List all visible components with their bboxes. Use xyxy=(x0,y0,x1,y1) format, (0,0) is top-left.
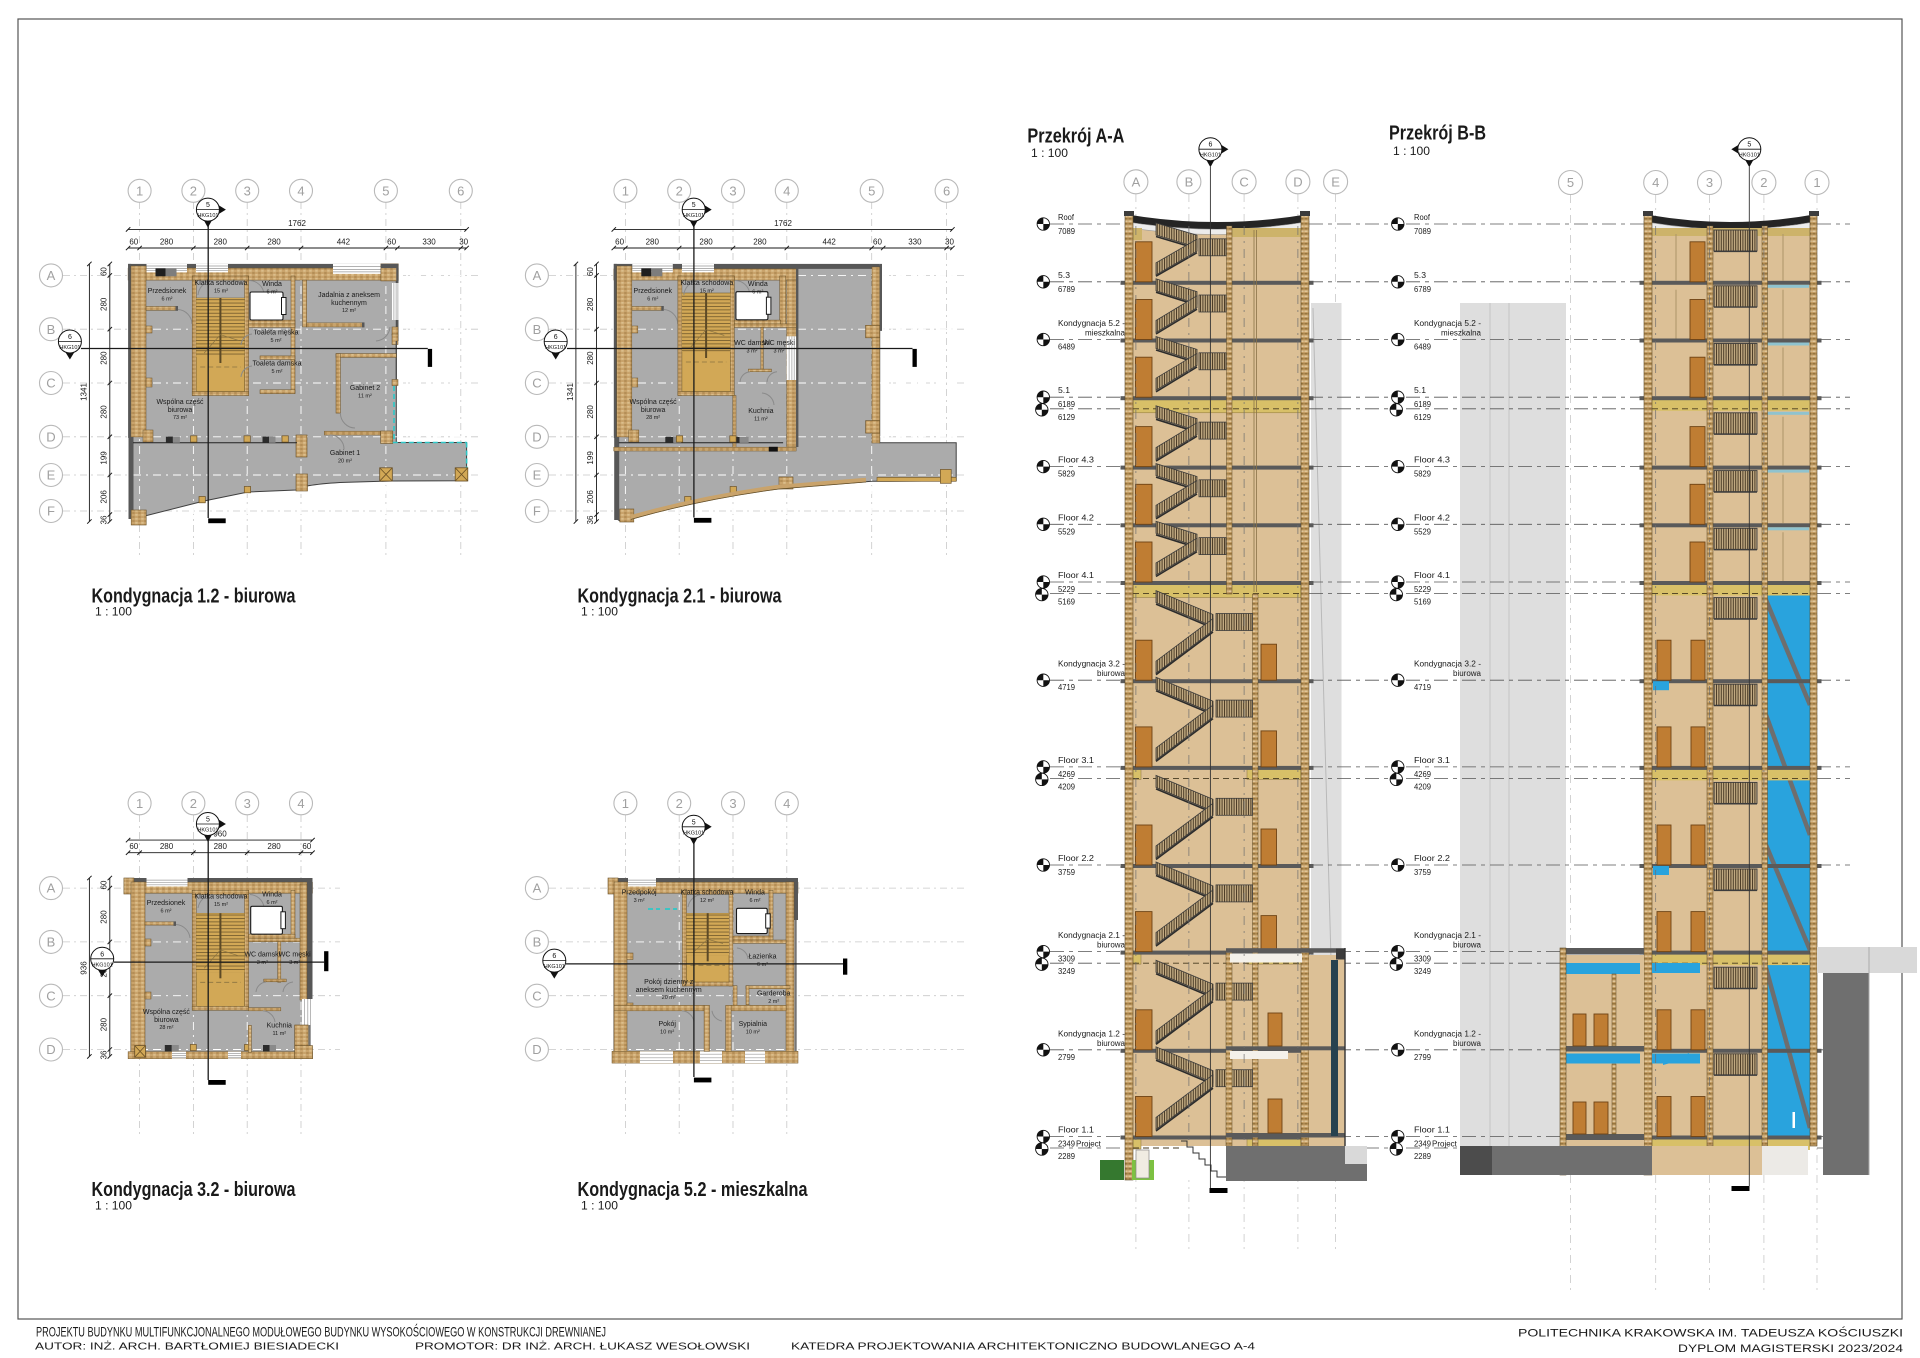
svg-text:Kondygnacja 1.2 -: Kondygnacja 1.2 - xyxy=(1058,1029,1125,1038)
svg-text:biurowa: biurowa xyxy=(154,1017,179,1024)
svg-text:Kuchnia: Kuchnia xyxy=(748,408,773,415)
svg-text:DYPLOM MAGISTERSKI 2023/2024: DYPLOM MAGISTERSKI 2023/2024 xyxy=(1678,1343,1903,1355)
svg-text:60: 60 xyxy=(129,842,138,851)
svg-text:936: 936 xyxy=(80,961,89,975)
svg-text:206: 206 xyxy=(100,490,109,504)
svg-text:60: 60 xyxy=(873,238,882,247)
svg-text:5: 5 xyxy=(692,202,696,209)
svg-text:5829: 5829 xyxy=(1058,470,1076,479)
svg-text:7089: 7089 xyxy=(1058,227,1076,236)
svg-text:1762: 1762 xyxy=(288,219,306,228)
svg-text:6189: 6189 xyxy=(1058,400,1076,409)
svg-text:HKG101: HKG101 xyxy=(683,213,704,219)
svg-text:Kondygnacja 2.1 -: Kondygnacja 2.1 - xyxy=(1414,931,1481,940)
svg-text:1 : 100: 1 : 100 xyxy=(95,1199,132,1213)
svg-text:Winda: Winda xyxy=(262,892,282,899)
svg-text:C: C xyxy=(46,988,55,1003)
svg-text:6: 6 xyxy=(100,951,104,958)
svg-text:Klatka schodowa: Klatka schodowa xyxy=(195,894,248,901)
svg-text:4: 4 xyxy=(1652,175,1659,190)
svg-text:280: 280 xyxy=(100,405,109,419)
svg-text:mieszkalna: mieszkalna xyxy=(1085,329,1126,338)
svg-text:6: 6 xyxy=(68,334,72,341)
svg-text:6: 6 xyxy=(552,953,556,960)
svg-text:6 m²: 6 m² xyxy=(267,900,278,906)
svg-text:28 m²: 28 m² xyxy=(159,1025,173,1031)
svg-text:Kondygnacja 3.2 -: Kondygnacja 3.2 - xyxy=(1058,660,1125,669)
svg-text:7089: 7089 xyxy=(1414,227,1432,236)
svg-text:60: 60 xyxy=(129,238,138,247)
svg-text:2: 2 xyxy=(190,796,197,811)
svg-text:5229: 5229 xyxy=(1414,585,1432,594)
svg-text:60: 60 xyxy=(615,238,624,247)
svg-text:6 m²: 6 m² xyxy=(161,909,172,915)
svg-text:Kuchnia: Kuchnia xyxy=(267,1023,292,1030)
svg-text:1: 1 xyxy=(622,796,629,811)
svg-text:5: 5 xyxy=(1567,175,1574,190)
svg-text:PROMOTOR: DR INŻ. ARCH. ŁUKASZ: PROMOTOR: DR INŻ. ARCH. ŁUKASZ WESOŁOWSK… xyxy=(415,1340,750,1353)
svg-text:Wspólna część: Wspólna część xyxy=(630,399,678,406)
svg-text:HKG101: HKG101 xyxy=(1739,153,1760,159)
svg-text:C: C xyxy=(532,988,541,1003)
svg-text:330: 330 xyxy=(908,238,922,247)
svg-text:206: 206 xyxy=(586,490,595,504)
svg-text:5 m²: 5 m² xyxy=(272,369,283,375)
svg-text:Kondygnacja 3.2 -: Kondygnacja 3.2 - xyxy=(1414,660,1481,669)
svg-text:POLITECHNIKA KRAKOWSKA IM. TAD: POLITECHNIKA KRAKOWSKA IM. TADEUSZA KOŚC… xyxy=(1518,1327,1903,1340)
svg-text:C: C xyxy=(46,376,55,391)
svg-text:1762: 1762 xyxy=(774,219,792,228)
svg-text:D: D xyxy=(532,429,541,444)
svg-text:Floor 4.3: Floor 4.3 xyxy=(1414,456,1451,465)
svg-text:Winda: Winda xyxy=(745,890,765,897)
svg-text:15 m²: 15 m² xyxy=(214,289,228,295)
svg-text:11 m²: 11 m² xyxy=(754,417,768,423)
svg-text:280: 280 xyxy=(100,351,109,365)
svg-text:D: D xyxy=(46,429,55,444)
svg-text:biurowa: biurowa xyxy=(1097,941,1126,950)
svg-text:280: 280 xyxy=(160,238,174,247)
svg-text:Kondygnacja 2.1 -: Kondygnacja 2.1 - xyxy=(1058,931,1125,940)
svg-text:5: 5 xyxy=(206,817,210,824)
svg-text:3759: 3759 xyxy=(1058,868,1076,877)
svg-text:Floor 1.1: Floor 1.1 xyxy=(1058,1126,1095,1135)
svg-text:E: E xyxy=(533,468,542,483)
svg-text:3309: 3309 xyxy=(1058,955,1076,964)
svg-text:5: 5 xyxy=(692,819,696,826)
svg-text:Roof: Roof xyxy=(1058,213,1075,222)
svg-text:Klatka schodowa: Klatka schodowa xyxy=(681,890,734,897)
svg-text:28 m²: 28 m² xyxy=(646,415,660,421)
svg-text:1 : 100: 1 : 100 xyxy=(1393,144,1430,158)
svg-text:Roof: Roof xyxy=(1414,213,1431,222)
svg-text:280: 280 xyxy=(100,910,109,924)
svg-text:3: 3 xyxy=(244,183,251,198)
svg-text:30: 30 xyxy=(945,238,954,247)
svg-text:Floor 3.1: Floor 3.1 xyxy=(1414,756,1451,765)
svg-text:5.3: 5.3 xyxy=(1414,271,1427,280)
svg-text:Przedsionek: Przedsionek xyxy=(148,288,187,295)
svg-text:2: 2 xyxy=(676,183,683,198)
svg-text:3759: 3759 xyxy=(1414,868,1432,877)
svg-text:Floor 4.2: Floor 4.2 xyxy=(1414,513,1451,522)
svg-text:5.3: 5.3 xyxy=(1058,271,1071,280)
svg-text:2289: 2289 xyxy=(1058,1152,1076,1161)
svg-text:6 m²: 6 m² xyxy=(267,290,278,296)
svg-text:4: 4 xyxy=(297,796,304,811)
svg-text:Przedpokój: Przedpokój xyxy=(622,890,657,897)
svg-text:5529: 5529 xyxy=(1414,527,1432,536)
svg-text:3 m²: 3 m² xyxy=(289,960,300,966)
svg-text:442: 442 xyxy=(337,238,351,247)
svg-text:1 : 100: 1 : 100 xyxy=(581,605,618,619)
svg-text:Project: Project xyxy=(1432,1140,1458,1149)
svg-text:4719: 4719 xyxy=(1414,683,1432,692)
svg-text:12 m²: 12 m² xyxy=(342,308,356,314)
svg-text:HKG101: HKG101 xyxy=(197,213,218,219)
svg-text:5: 5 xyxy=(868,183,875,198)
svg-text:1 : 100: 1 : 100 xyxy=(95,605,132,619)
svg-text:73 m²: 73 m² xyxy=(173,415,187,421)
svg-text:1: 1 xyxy=(1813,175,1820,190)
svg-text:60: 60 xyxy=(302,842,311,851)
svg-text:6489: 6489 xyxy=(1058,343,1076,352)
svg-text:2: 2 xyxy=(1760,175,1767,190)
svg-text:HKG101: HKG101 xyxy=(92,962,113,968)
svg-text:6 m²: 6 m² xyxy=(750,898,761,904)
svg-text:Gabinet 2: Gabinet 2 xyxy=(350,385,380,392)
svg-text:E: E xyxy=(1331,174,1340,189)
svg-text:4: 4 xyxy=(297,183,304,198)
svg-text:11 m²: 11 m² xyxy=(272,1031,286,1037)
svg-text:Przekrój B-B: Przekrój B-B xyxy=(1389,122,1486,144)
svg-text:Wspólna część: Wspólna część xyxy=(143,1009,191,1016)
svg-text:B: B xyxy=(47,935,56,950)
svg-text:D: D xyxy=(532,1042,541,1057)
svg-text:PROJEKTU BUDYNKU MULTIFUNKCJON: PROJEKTU BUDYNKU MULTIFUNKCJONALNEGO MOD… xyxy=(36,1323,606,1340)
svg-text:A: A xyxy=(47,881,56,896)
svg-text:60: 60 xyxy=(387,238,396,247)
svg-text:280: 280 xyxy=(100,1017,109,1031)
svg-text:6: 6 xyxy=(457,183,464,198)
svg-text:HKG101: HKG101 xyxy=(545,345,566,351)
svg-text:F: F xyxy=(47,504,55,519)
svg-text:WC damski: WC damski xyxy=(244,952,280,959)
svg-text:15 m²: 15 m² xyxy=(214,902,228,908)
svg-text:3 m²: 3 m² xyxy=(774,349,785,355)
svg-text:4209: 4209 xyxy=(1414,782,1432,791)
svg-text:5: 5 xyxy=(206,202,210,209)
svg-text:biurowa: biurowa xyxy=(1097,1039,1126,1048)
svg-text:Winda: Winda xyxy=(748,281,768,288)
svg-text:2: 2 xyxy=(676,796,683,811)
svg-text:280: 280 xyxy=(586,351,595,365)
svg-text:5529: 5529 xyxy=(1058,527,1076,536)
svg-text:280: 280 xyxy=(267,238,281,247)
svg-text:Floor 2.2: Floor 2.2 xyxy=(1414,854,1451,863)
svg-text:biurowa: biurowa xyxy=(641,407,666,414)
svg-text:C: C xyxy=(1239,174,1248,189)
svg-text:HKG101: HKG101 xyxy=(197,828,218,834)
svg-text:6489: 6489 xyxy=(1414,343,1432,352)
svg-text:330: 330 xyxy=(422,238,436,247)
svg-text:199: 199 xyxy=(100,451,109,465)
svg-text:Kondygnacja 5.2 -: Kondygnacja 5.2 - xyxy=(1058,319,1125,328)
svg-text:3: 3 xyxy=(1706,175,1713,190)
svg-text:Sypialnia: Sypialnia xyxy=(739,1021,768,1028)
svg-text:B: B xyxy=(1185,174,1194,189)
svg-text:10 m²: 10 m² xyxy=(660,1030,674,1036)
svg-text:Przedsionek: Przedsionek xyxy=(147,900,186,907)
svg-text:30: 30 xyxy=(459,238,468,247)
svg-text:4719: 4719 xyxy=(1058,683,1076,692)
svg-text:442: 442 xyxy=(823,238,837,247)
svg-text:C: C xyxy=(532,376,541,391)
svg-text:5: 5 xyxy=(382,183,389,198)
svg-text:280: 280 xyxy=(699,238,713,247)
svg-text:5169: 5169 xyxy=(1058,598,1076,607)
svg-text:Kondygnacja 1.2 -: Kondygnacja 1.2 - xyxy=(1414,1029,1481,1038)
svg-text:B: B xyxy=(533,322,542,337)
svg-text:Floor 1.1: Floor 1.1 xyxy=(1414,1126,1451,1135)
svg-text:6789: 6789 xyxy=(1058,285,1076,294)
svg-text:HKG101: HKG101 xyxy=(544,964,565,970)
svg-text:KATEDRA PROJEKTOWANIA ARCHITEK: KATEDRA PROJEKTOWANIA ARCHITEKTONICZNO B… xyxy=(791,1341,1255,1353)
svg-text:3309: 3309 xyxy=(1414,955,1432,964)
svg-text:60: 60 xyxy=(586,267,595,276)
svg-text:Pokój dzienny z: Pokój dzienny z xyxy=(644,979,694,986)
svg-text:Floor 3.1: Floor 3.1 xyxy=(1058,756,1095,765)
svg-text:15 m²: 15 m² xyxy=(700,289,714,295)
svg-text:Floor 2.2: Floor 2.2 xyxy=(1058,854,1095,863)
svg-text:Toaleta damska: Toaleta damska xyxy=(252,361,301,368)
svg-text:6 m²: 6 m² xyxy=(162,297,173,303)
svg-text:4209: 4209 xyxy=(1058,782,1076,791)
svg-text:4: 4 xyxy=(783,183,790,198)
svg-text:6189: 6189 xyxy=(1414,400,1432,409)
svg-text:Floor 4.1: Floor 4.1 xyxy=(1414,571,1451,580)
svg-text:2: 2 xyxy=(190,183,197,198)
svg-text:199: 199 xyxy=(586,451,595,465)
svg-text:Pokój: Pokój xyxy=(658,1021,676,1028)
svg-text:3: 3 xyxy=(244,796,251,811)
svg-text:5 m²: 5 m² xyxy=(271,338,282,344)
svg-text:1341: 1341 xyxy=(80,383,89,401)
svg-text:280: 280 xyxy=(753,238,767,247)
svg-text:3: 3 xyxy=(729,183,736,198)
svg-text:Toaleta męska: Toaleta męska xyxy=(253,330,298,337)
svg-text:biurowa: biurowa xyxy=(168,407,193,414)
svg-text:3: 3 xyxy=(729,796,736,811)
svg-text:3249: 3249 xyxy=(1058,967,1076,976)
svg-text:B: B xyxy=(533,935,542,950)
svg-text:Gabinet 1: Gabinet 1 xyxy=(330,450,360,457)
svg-text:biurowa: biurowa xyxy=(1453,669,1482,678)
svg-text:Kondygnacja 5.2 -: Kondygnacja 5.2 - xyxy=(1414,319,1481,328)
svg-text:A: A xyxy=(533,881,542,896)
svg-text:6789: 6789 xyxy=(1414,285,1432,294)
svg-text:6: 6 xyxy=(943,183,950,198)
svg-text:3 m²: 3 m² xyxy=(634,898,645,904)
svg-text:280: 280 xyxy=(586,297,595,311)
svg-text:Klatka schodowa: Klatka schodowa xyxy=(680,280,733,287)
svg-text:5169: 5169 xyxy=(1414,598,1432,607)
svg-text:36: 36 xyxy=(100,515,109,524)
svg-text:280: 280 xyxy=(214,238,228,247)
svg-text:HKG101: HKG101 xyxy=(1200,153,1221,159)
svg-text:6129: 6129 xyxy=(1414,413,1432,422)
svg-text:4269: 4269 xyxy=(1058,770,1076,779)
svg-text:6129: 6129 xyxy=(1058,413,1076,422)
svg-text:Floor 4.1: Floor 4.1 xyxy=(1058,571,1095,580)
svg-text:11 m²: 11 m² xyxy=(358,394,372,400)
svg-text:1341: 1341 xyxy=(566,383,575,401)
svg-text:biurowa: biurowa xyxy=(1097,669,1126,678)
svg-text:36: 36 xyxy=(100,1050,109,1059)
svg-text:Przedsionek: Przedsionek xyxy=(634,288,673,295)
svg-text:2349: 2349 xyxy=(1058,1140,1076,1149)
svg-text:Wspólna część: Wspólna część xyxy=(156,399,204,406)
svg-text:1: 1 xyxy=(136,796,143,811)
svg-text:D: D xyxy=(1293,174,1302,189)
svg-text:280: 280 xyxy=(100,297,109,311)
svg-text:1: 1 xyxy=(622,183,629,198)
svg-text:280: 280 xyxy=(160,842,174,851)
svg-text:AUTOR: INŻ. ARCH. BARTŁOMIEJ B: AUTOR: INŻ. ARCH. BARTŁOMIEJ BIESIADECKI xyxy=(35,1340,339,1353)
svg-text:Przekrój A-A: Przekrój A-A xyxy=(1027,126,1124,148)
svg-text:A: A xyxy=(533,268,542,283)
svg-text:36: 36 xyxy=(586,515,595,524)
svg-text:E: E xyxy=(47,468,56,483)
svg-text:HKG101: HKG101 xyxy=(683,830,704,836)
svg-text:B: B xyxy=(47,322,56,337)
svg-text:Klatka schodowa: Klatka schodowa xyxy=(195,280,248,287)
svg-text:Łazienka: Łazienka xyxy=(748,954,776,961)
svg-text:1 : 100: 1 : 100 xyxy=(581,1199,618,1213)
svg-text:WC męski: WC męski xyxy=(763,340,795,347)
svg-text:5829: 5829 xyxy=(1414,470,1432,479)
svg-text:5.1: 5.1 xyxy=(1414,386,1427,395)
svg-text:D: D xyxy=(46,1042,55,1057)
svg-text:3249: 3249 xyxy=(1414,967,1432,976)
svg-text:Winda: Winda xyxy=(262,281,282,288)
svg-text:aneksem kuchennym: aneksem kuchennym xyxy=(636,987,702,994)
svg-text:5.1: 5.1 xyxy=(1058,386,1071,395)
svg-text:Jadalnia z aneksem: Jadalnia z aneksem xyxy=(318,292,380,299)
svg-text:280: 280 xyxy=(267,842,281,851)
svg-text:2799: 2799 xyxy=(1058,1053,1076,1062)
svg-text:Floor 4.3: Floor 4.3 xyxy=(1058,456,1095,465)
svg-text:Project: Project xyxy=(1076,1140,1102,1149)
svg-text:12 m²: 12 m² xyxy=(700,898,714,904)
svg-text:280: 280 xyxy=(646,238,660,247)
svg-text:10 m²: 10 m² xyxy=(746,1030,760,1036)
svg-text:5229: 5229 xyxy=(1058,585,1076,594)
svg-text:60: 60 xyxy=(100,880,109,889)
svg-text:biurowa: biurowa xyxy=(1453,941,1482,950)
svg-text:2799: 2799 xyxy=(1414,1053,1432,1062)
svg-text:F: F xyxy=(533,504,541,519)
svg-text:5: 5 xyxy=(1747,142,1751,149)
svg-text:biurowa: biurowa xyxy=(1453,1039,1482,1048)
svg-text:6 m²: 6 m² xyxy=(757,962,768,968)
svg-text:HKG101: HKG101 xyxy=(59,345,80,351)
svg-text:60: 60 xyxy=(100,267,109,276)
svg-text:6 m²: 6 m² xyxy=(752,290,763,296)
svg-text:280: 280 xyxy=(586,405,595,419)
svg-text:6: 6 xyxy=(1208,142,1212,149)
svg-text:4269: 4269 xyxy=(1414,770,1432,779)
svg-text:WC męski: WC męski xyxy=(279,952,311,959)
svg-text:3 m²: 3 m² xyxy=(257,960,268,966)
svg-text:3 m²: 3 m² xyxy=(747,349,758,355)
svg-text:1 : 100: 1 : 100 xyxy=(1031,146,1068,160)
svg-text:2 m²: 2 m² xyxy=(768,999,779,1005)
svg-text:2349: 2349 xyxy=(1414,1140,1432,1149)
svg-text:kuchennym: kuchennym xyxy=(331,300,367,307)
svg-text:1: 1 xyxy=(136,183,143,198)
svg-text:20 m²: 20 m² xyxy=(662,995,676,1001)
svg-text:6: 6 xyxy=(554,334,558,341)
svg-text:A: A xyxy=(1132,174,1141,189)
svg-text:Garderoba: Garderoba xyxy=(757,991,791,998)
svg-text:Floor 4.2: Floor 4.2 xyxy=(1058,513,1095,522)
svg-text:280: 280 xyxy=(214,842,228,851)
svg-text:2289: 2289 xyxy=(1414,1152,1432,1161)
svg-text:20 m²: 20 m² xyxy=(338,459,352,465)
svg-text:mieszkalna: mieszkalna xyxy=(1441,329,1482,338)
svg-text:6 m²: 6 m² xyxy=(647,297,658,303)
svg-text:4: 4 xyxy=(783,796,790,811)
svg-text:A: A xyxy=(47,268,56,283)
